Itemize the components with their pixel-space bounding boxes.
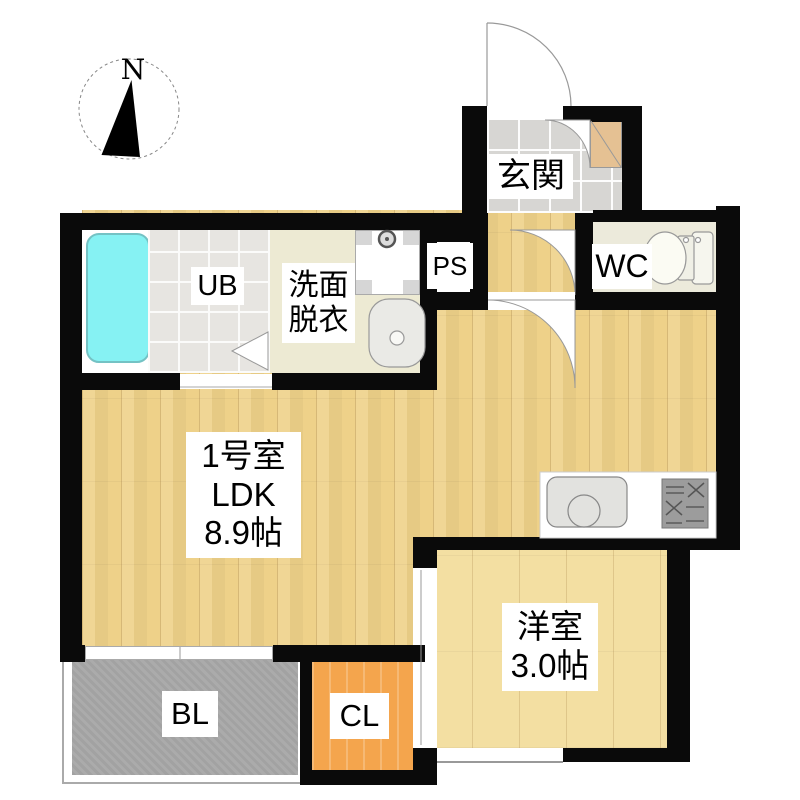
wall <box>60 213 462 230</box>
washroom-label-line1: 洗面 <box>289 268 349 303</box>
wall <box>622 106 642 222</box>
shoe-cabinet <box>590 120 622 168</box>
western-room-window <box>437 749 563 763</box>
pad-corner <box>356 231 372 245</box>
ldk-label-line2: LDK <box>211 476 275 515</box>
wall <box>462 106 487 222</box>
wall <box>667 548 690 762</box>
wall <box>413 537 740 550</box>
compass-north-label: N <box>121 53 146 86</box>
wall <box>273 645 425 662</box>
wall <box>413 537 437 568</box>
unit-bath-label: UB <box>191 267 244 305</box>
wall <box>575 292 740 310</box>
wall <box>437 218 470 242</box>
balcony-label: BL <box>162 691 218 737</box>
wall <box>575 213 593 292</box>
compass-needle-icon <box>102 80 141 157</box>
pad-corner <box>356 280 372 294</box>
wall <box>60 645 85 662</box>
ldk-label-line1: 1号室 <box>201 437 285 476</box>
wall <box>300 770 437 785</box>
wall <box>563 748 690 762</box>
wc-label: WC <box>592 244 652 289</box>
wall <box>60 213 82 662</box>
washroom-label: 洗面 脱衣 <box>282 263 355 343</box>
pad-corner <box>403 280 419 294</box>
pad-corner <box>403 231 419 245</box>
floorplan-canvas: N <box>0 0 800 800</box>
outside-patch <box>690 550 748 762</box>
wall <box>716 206 740 550</box>
ldk-label: 1号室 LDK 8.9帖 <box>186 432 301 558</box>
closet-label: CL <box>330 693 389 739</box>
entrance-door-swing <box>487 23 571 106</box>
bathtub <box>86 233 150 363</box>
wall <box>272 373 437 390</box>
balcony-window <box>85 646 273 660</box>
western-room-label-line2: 3.0帖 <box>511 647 590 686</box>
compass-circle <box>79 59 179 159</box>
western-room-label: 洋室 3.0帖 <box>502 603 598 691</box>
western-room-label-line1: 洋室 <box>517 608 583 647</box>
washing-machine-pad <box>355 230 420 295</box>
entrance-label: 玄関 <box>489 154 573 199</box>
wall <box>300 648 312 785</box>
compass: N <box>79 53 179 159</box>
pipe-space-label: PS <box>427 243 473 289</box>
wall <box>60 373 180 390</box>
ldk-label-line3: 8.9帖 <box>204 514 283 553</box>
washroom-label-line2: 脱衣 <box>289 303 349 338</box>
